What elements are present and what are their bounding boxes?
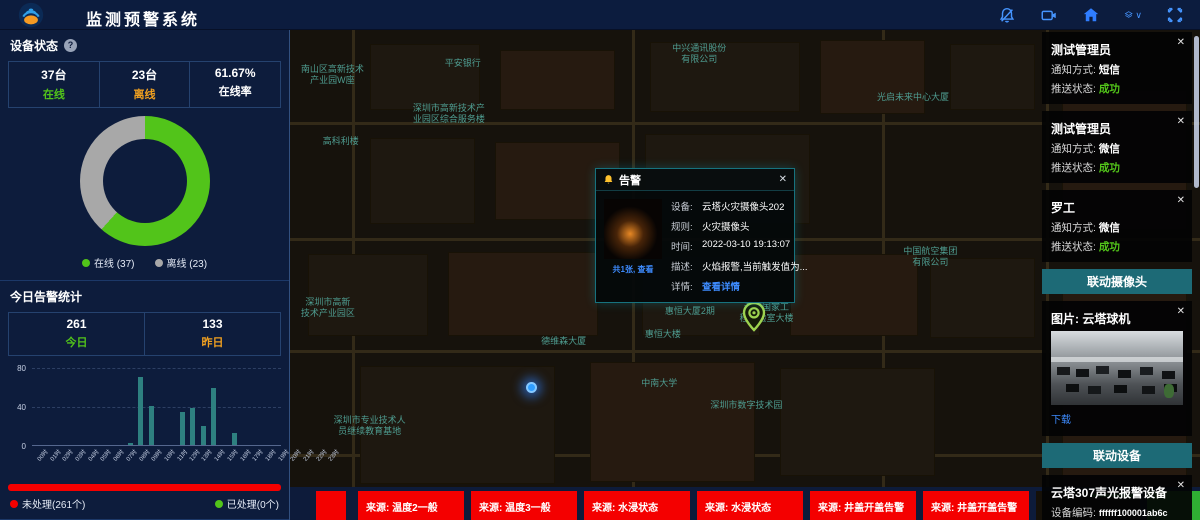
device-status-donut-chart [80, 116, 210, 246]
progress-legend: 未处理(261个) 已处理(0个) [10, 496, 279, 511]
map-label: 高科利楼 [323, 136, 359, 147]
bar-slot [229, 433, 239, 445]
stat-value: 61.67% [190, 66, 280, 80]
unhandled-dot [10, 500, 18, 508]
alarm-bell-icon [603, 174, 614, 185]
legend-dot [155, 259, 163, 267]
popup-row: 规则:火灾摄像头 [671, 219, 808, 233]
camera-snapshot[interactable] [1051, 331, 1183, 405]
camera-image-card: 图片: 云塔球机 ✕ 下载 [1042, 301, 1192, 436]
alert-card-value: 成功 [1099, 241, 1120, 253]
scrollbar[interactable] [1194, 36, 1199, 188]
stat-value: 133 [145, 317, 280, 331]
handled-label: 已处理(0个) [227, 496, 279, 511]
popup-row-label: 规则: [671, 219, 702, 233]
popup-row-value: 2022-03-10 19:13:07 [702, 239, 790, 253]
map-label: 平安银行 [445, 58, 481, 69]
map-building [950, 44, 1035, 110]
close-icon[interactable]: ✕ [1177, 195, 1185, 206]
map-building [820, 40, 925, 114]
today-alarm-stats: 261今日133昨日 [8, 312, 281, 356]
stat-cell: 37台在线 [9, 62, 99, 107]
close-icon[interactable]: ✕ [779, 174, 787, 185]
popup-row: 详情:查看详情 [671, 279, 808, 293]
map-building [448, 252, 598, 336]
legend-label: 离线 (23) [167, 255, 208, 270]
stat-cell: 61.67%在线率 [189, 62, 280, 107]
alert-card-value: 微信 [1099, 143, 1120, 155]
bar-slot [146, 406, 156, 445]
alarm-snapshot[interactable] [604, 199, 662, 259]
bar-slot [125, 443, 135, 445]
close-icon[interactable]: ✕ [1177, 480, 1185, 491]
alert-card-value: 微信 [1099, 222, 1120, 234]
donut-legend: 在线 (37)离线 (23) [0, 255, 289, 270]
close-icon[interactable]: ✕ [1177, 116, 1185, 127]
device-cluster-dot[interactable] [526, 382, 537, 393]
map-building [930, 258, 1035, 338]
alert-card-row: 通知方式:微信 [1051, 220, 1183, 235]
bar [138, 377, 143, 445]
alert-card-row: 推送状态:成功 [1051, 160, 1183, 175]
alert-card: 云塔307声光报警设备✕设备编码:ffffff100001ab6c调用服务:报警… [1042, 475, 1192, 520]
device-status-section: 设备状态 ? 37台在线23台离线61.67%在线率 在线 (37)离线 (23… [0, 30, 289, 270]
close-icon[interactable]: ✕ [1177, 306, 1185, 317]
map-building [790, 254, 918, 336]
alert-ticket[interactable]: 来源: 温度2一般 [358, 491, 464, 520]
stat-label: 在线率 [190, 83, 280, 99]
today-alarm-title: 今日告警统计 [10, 288, 82, 305]
bar [232, 433, 237, 445]
help-icon[interactable]: ? [64, 39, 77, 52]
right-alert-panel: 测试管理员✕通知方式:短信推送状态:成功测试管理员✕通知方式:微信推送状态:成功… [1042, 32, 1192, 520]
alert-card-value: ffffff100001ab6c [1099, 508, 1168, 518]
detail-link[interactable]: 查看详情 [702, 279, 740, 293]
alert-ticket[interactable]: 来源: 水浸状态 [697, 491, 803, 520]
bar [211, 388, 216, 445]
download-link[interactable]: 下载 [1051, 411, 1071, 426]
stat-label: 昨日 [145, 334, 280, 350]
alert-ticket[interactable]: 来源: 井盖开盖告警 [923, 491, 1029, 520]
stat-cell: 23台离线 [99, 62, 190, 107]
stat-value: 23台 [100, 66, 190, 83]
bar [180, 412, 185, 445]
stat-label: 离线 [100, 86, 190, 102]
layers-icon[interactable]: ∨ [1124, 6, 1142, 24]
bar-slot [136, 377, 146, 445]
stat-label: 在线 [9, 86, 99, 102]
alert-card: 测试管理员✕通知方式:短信推送状态:成功 [1042, 32, 1192, 104]
left-stats-panel: 设备状态 ? 37台在线23台离线61.67%在线率 在线 (37)离线 (23… [0, 30, 290, 520]
alarm-location-pin-icon[interactable] [742, 302, 766, 337]
map-label: 惠恒大厦2期 [665, 306, 715, 317]
bar-slot [208, 388, 218, 445]
alert-card-title: 罗工 [1051, 199, 1183, 216]
map-label: 惠恒大楼 [645, 329, 681, 340]
alert-card-value: 成功 [1099, 83, 1120, 95]
alert-card-row: 设备编码:ffffff100001ab6c [1051, 505, 1183, 520]
snapshot-view-link[interactable]: 共1张, 查看 [604, 264, 662, 275]
linked-camera-header: 联动摄像头 [1042, 269, 1192, 294]
alert-card-row: 推送状态:成功 [1051, 239, 1183, 254]
map-label: 中兴通讯股份 有限公司 [672, 43, 726, 65]
alert-card-title: 测试管理员 [1051, 120, 1183, 137]
stat-value: 261 [9, 317, 144, 331]
handled-dot [215, 500, 223, 508]
bell-muted-icon[interactable] [998, 6, 1016, 24]
popup-row-value: 火灾摄像头 [702, 219, 750, 233]
video-camera-icon[interactable] [1040, 6, 1058, 24]
alert-card-title: 测试管理员 [1051, 41, 1183, 58]
donut-hole [103, 139, 187, 223]
popup-row-label: 设备: [671, 199, 702, 213]
alert-card-row: 通知方式:短信 [1051, 62, 1183, 77]
unhandled-progress-bar [8, 484, 281, 491]
map-label: 深圳市高新 技术产业园区 [301, 297, 355, 319]
alert-card: 罗工✕通知方式:微信推送状态:成功 [1042, 190, 1192, 262]
map-label: 深圳市高新技术产 业园区综合服务楼 [413, 103, 485, 125]
popup-row: 设备:云塔火灾摄像头202 [671, 199, 808, 213]
alert-card: 测试管理员✕通知方式:微信推送状态:成功 [1042, 111, 1192, 183]
map-building [308, 254, 428, 336]
home-icon[interactable] [1082, 6, 1100, 24]
close-icon[interactable]: ✕ [1177, 37, 1185, 48]
bar [190, 408, 195, 445]
popup-row-label: 时间: [671, 239, 702, 253]
camera-image-title: 图片: 云塔球机 [1051, 310, 1183, 327]
legend-label: 在线 (37) [94, 255, 135, 270]
alert-ticket[interactable]: 来源: 温度3一般 [471, 491, 577, 520]
alert-card-title: 云塔307声光报警设备 [1051, 484, 1183, 501]
alert-ticket[interactable]: 来源: 井盖开盖告警 [810, 491, 916, 520]
popup-row-label: 详情: [671, 279, 702, 293]
alert-ticket[interactable]: 来源: 水浸状态 [584, 491, 690, 520]
bar-slot [198, 426, 208, 446]
map-label: 南山区高新技术 产业园W座 [301, 64, 364, 86]
alert-card-row: 通知方式:微信 [1051, 141, 1183, 156]
bar-slot [188, 408, 198, 445]
map-building [370, 138, 475, 224]
legend-dot [82, 259, 90, 267]
map-building [780, 368, 935, 476]
today-alarm-section: 今日告警统计 261今日133昨日 80 40 0 00时01时02时03时04… [0, 280, 289, 511]
map-label: 中南大学 [641, 378, 677, 389]
alarm-popup-title: 告警 [619, 172, 641, 188]
chevron-down-icon: ∨ [1135, 10, 1142, 21]
alert-card-value: 短信 [1099, 64, 1120, 76]
alarm-popup: 告警 ✕ 共1张, 查看 设备:云塔火灾摄像头202规则:火灾摄像头时间:202… [595, 168, 795, 303]
page-title: 监测预警系统 [86, 6, 200, 30]
map-building [370, 44, 480, 110]
alarm-popup-header: 告警 ✕ [596, 169, 794, 191]
app-header: 监测预警系统 ∨ [0, 0, 1200, 30]
unhandled-label: 未处理(261个) [22, 496, 85, 511]
alert-ticket-partial[interactable] [316, 491, 346, 520]
popup-row-value: 火焰报警,当前触发值为... [702, 259, 808, 273]
legend-item: 离线 (23) [155, 255, 208, 270]
popup-row: 描述:火焰报警,当前触发值为... [671, 259, 808, 273]
linked-device-header: 联动设备 [1042, 443, 1192, 468]
stat-value: 37台 [9, 66, 99, 83]
map-label: 深圳市专业技术人 员继续教育基地 [334, 415, 406, 437]
stat-cell: 261今日 [9, 313, 144, 355]
bar [128, 443, 133, 445]
device-status-title: 设备状态 [10, 37, 58, 54]
map-label: 中国航空集团 有限公司 [903, 246, 957, 268]
popup-row: 时间:2022-03-10 19:13:07 [671, 239, 808, 253]
map-label: 德维森大厦 [541, 336, 586, 347]
popup-row-label: 描述: [671, 259, 702, 273]
device-status-stats: 37台在线23台离线61.67%在线率 [8, 61, 281, 108]
bar-slot [177, 412, 187, 445]
bar [201, 426, 206, 446]
map-building [500, 50, 615, 110]
map-label: 深圳市数字技术园 [710, 400, 782, 411]
alert-card-row: 推送状态:成功 [1051, 81, 1183, 96]
stat-label: 今日 [9, 334, 144, 350]
map-label: 光启未来中心大厦 [877, 92, 949, 103]
legend-item: 在线 (37) [82, 255, 135, 270]
app-logo [18, 2, 44, 28]
hourly-alarm-bar-chart: 80 40 0 00时01时02时03时04时05时06时07时08时09时10… [0, 362, 289, 478]
alert-card-value: 成功 [1099, 162, 1120, 174]
fullscreen-icon[interactable] [1166, 6, 1184, 24]
popup-row-value: 云塔火灾摄像头202 [702, 199, 784, 213]
bar [149, 406, 154, 445]
stat-cell: 133昨日 [144, 313, 280, 355]
